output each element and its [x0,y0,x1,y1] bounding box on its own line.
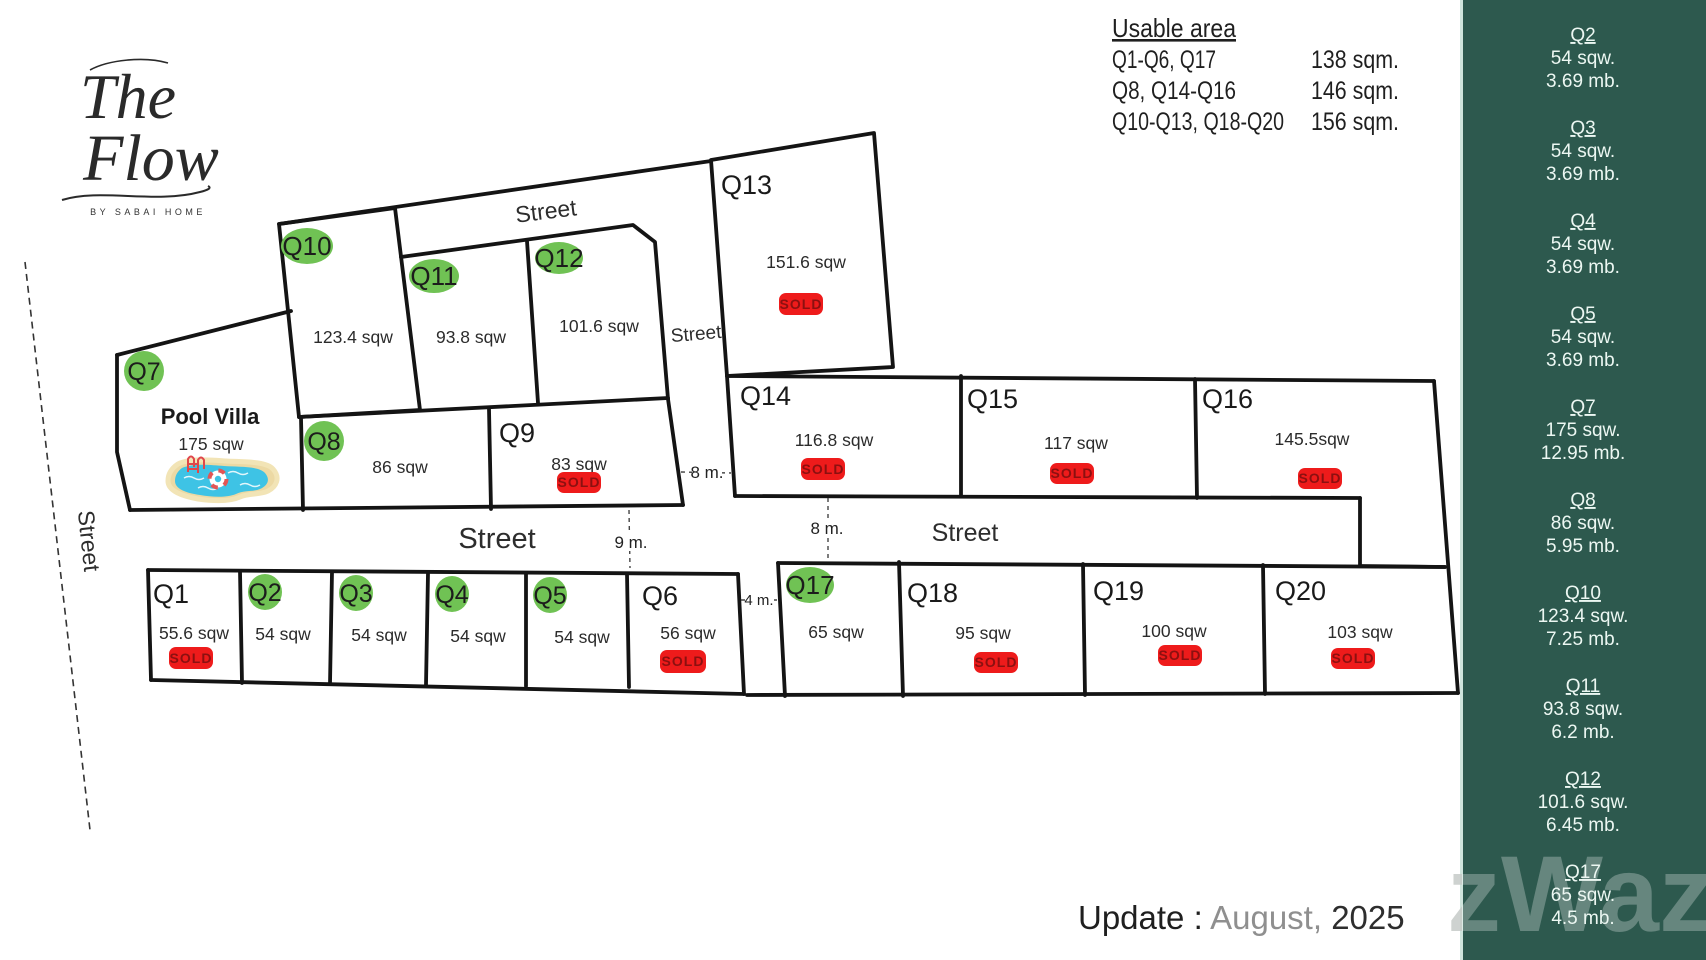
svg-text:83 sqw: 83 sqw [551,454,607,474]
svg-text:Q4: Q4 [435,581,468,609]
svg-text:Q3: Q3 [339,580,372,608]
svg-text:Street: Street [670,322,723,347]
svg-text:3.69 mb.: 3.69 mb. [1546,350,1620,371]
svg-text:Q18: Q18 [907,578,958,608]
svg-text:SOLD: SOLD [975,654,1018,670]
svg-text:Pool Villa: Pool Villa [161,404,260,429]
svg-text:Q17: Q17 [785,570,834,600]
svg-text:Update : August, 2025: Update : August, 2025 [1078,899,1405,936]
svg-text:SOLD: SOLD [802,461,845,477]
svg-text:SOLD: SOLD [662,653,705,669]
svg-text:117 sqw: 117 sqw [1044,433,1108,453]
svg-text:Q2: Q2 [248,579,281,607]
svg-text:116.8 sqw: 116.8 sqw [795,430,874,450]
svg-text:8 m.: 8 m. [810,519,843,538]
svg-text:Q12: Q12 [1565,769,1601,790]
svg-text:Q13: Q13 [721,170,772,200]
svg-text:93.8 sqw.: 93.8 sqw. [1543,699,1623,720]
svg-text:55.6 sqw: 55.6 sqw [159,623,229,643]
svg-text:101.6 sqw: 101.6 sqw [559,316,639,336]
svg-text:86 sqw: 86 sqw [372,457,428,477]
svg-text:Q14: Q14 [740,381,791,411]
svg-text:9 m.: 9 m. [614,533,647,552]
svg-text:95 sqw: 95 sqw [955,623,1011,643]
svg-text:54 sqw.: 54 sqw. [1551,48,1615,69]
svg-text:93.8 sqw: 93.8 sqw [436,327,506,347]
svg-text:Q17: Q17 [1565,862,1601,883]
svg-text:Q19: Q19 [1093,576,1144,606]
svg-text:Q3: Q3 [1570,118,1595,139]
svg-text:3.69 mb.: 3.69 mb. [1546,164,1620,185]
svg-text:65 sqw: 65 sqw [808,622,864,642]
svg-text:Q2: Q2 [1570,25,1595,46]
svg-text:SOLD: SOLD [1299,470,1342,486]
svg-text:101.6 sqw.: 101.6 sqw. [1538,792,1629,813]
svg-text:Q10: Q10 [282,231,331,261]
svg-text:175 sqw: 175 sqw [178,434,244,454]
svg-text:54 sqw.: 54 sqw. [1551,234,1615,255]
svg-text:151.6 sqw: 151.6 sqw [766,252,846,272]
svg-text:Q12: Q12 [534,243,583,273]
svg-text:56 sqw: 56 sqw [660,623,716,643]
svg-text:Q6: Q6 [642,581,678,611]
svg-text:Q11: Q11 [1566,676,1601,697]
svg-text:156 sqm.: 156 sqm. [1311,108,1399,136]
svg-text:Q5: Q5 [533,582,566,610]
svg-text:54 sqw: 54 sqw [554,627,610,647]
svg-text:Q9: Q9 [499,418,535,448]
svg-text:Q11: Q11 [410,261,457,291]
svg-text:54 sqw: 54 sqw [255,624,311,644]
svg-text:Q10-Q13, Q18-Q20: Q10-Q13, Q18-Q20 [1112,108,1284,136]
svg-text:145.5sqw: 145.5sqw [1275,429,1350,449]
svg-text:6.45 mb.: 6.45 mb. [1546,815,1620,836]
svg-text:86 sqw.: 86 sqw. [1551,513,1615,534]
svg-text:146 sqm.: 146 sqm. [1311,77,1399,105]
svg-text:5.95 mb.: 5.95 mb. [1546,536,1620,557]
svg-text:BY SABAI HOME: BY SABAI HOME [90,207,206,217]
svg-text:Q8: Q8 [307,428,340,456]
svg-text:Q1: Q1 [153,579,189,609]
svg-text:100 sqw: 100 sqw [1141,621,1207,641]
svg-text:Usable area: Usable area [1112,13,1236,43]
svg-text:Q10: Q10 [1565,583,1601,604]
svg-text:Q7: Q7 [127,358,160,386]
svg-text:54 sqw.: 54 sqw. [1551,141,1615,162]
svg-text:SOLD: SOLD [170,650,213,666]
svg-text:7.25 mb.: 7.25 mb. [1546,629,1620,650]
svg-text:SOLD: SOLD [558,474,601,490]
svg-text:Street: Street [932,519,999,547]
svg-text:3.69 mb.: 3.69 mb. [1546,257,1620,278]
svg-text:Q20: Q20 [1275,576,1326,606]
svg-text:Flow: Flow [82,122,219,195]
svg-text:Q15: Q15 [967,384,1018,414]
svg-text:SOLD: SOLD [1159,647,1202,663]
svg-text:SOLD: SOLD [780,296,823,312]
svg-text:SOLD: SOLD [1051,465,1094,481]
svg-text:123.4 sqw: 123.4 sqw [313,327,393,347]
svg-text:138 sqm.: 138 sqm. [1311,46,1399,74]
svg-text:12.95 mb.: 12.95 mb. [1541,443,1626,464]
svg-text:65 sqw.: 65 sqw. [1551,885,1615,906]
svg-text:4.5 mb.: 4.5 mb. [1551,908,1614,929]
svg-text:SOLD: SOLD [1332,650,1375,666]
svg-text:6.2 mb.: 6.2 mb. [1551,722,1614,743]
svg-text:Q5: Q5 [1570,304,1595,325]
svg-text:Q1-Q6, Q17: Q1-Q6, Q17 [1112,46,1216,74]
svg-text:3.69 mb.: 3.69 mb. [1546,71,1620,92]
svg-text:54 sqw: 54 sqw [351,625,407,645]
svg-text:Q4: Q4 [1570,211,1596,232]
svg-text:54 sqw.: 54 sqw. [1551,327,1615,348]
svg-text:103 sqw: 103 sqw [1327,622,1393,642]
svg-text:175 sqw.: 175 sqw. [1546,420,1621,441]
svg-text:8 m.: 8 m. [690,463,723,482]
svg-text:Q7: Q7 [1570,397,1595,418]
svg-text:123.4 sqw.: 123.4 sqw. [1538,606,1629,627]
svg-text:Q8: Q8 [1570,490,1595,511]
svg-text:Street: Street [458,523,535,555]
svg-text:54 sqw: 54 sqw [450,626,506,646]
svg-text:Q8, Q14-Q16: Q8, Q14-Q16 [1112,77,1236,105]
svg-text:Q16: Q16 [1202,384,1253,414]
svg-text:4 m.: 4 m. [744,592,773,609]
